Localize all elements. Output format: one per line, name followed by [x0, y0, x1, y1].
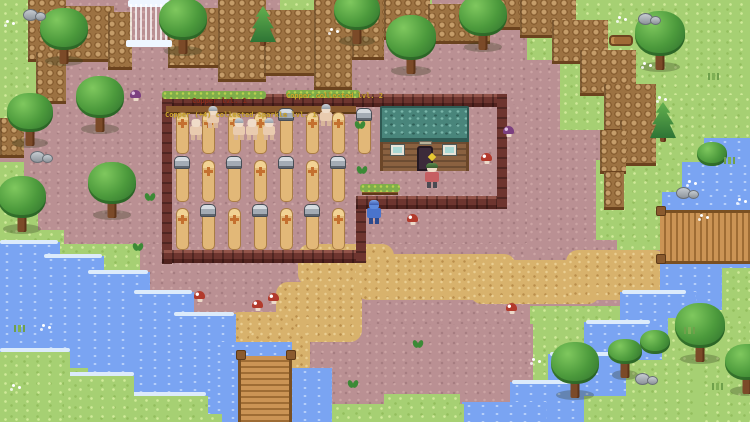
tree	[725, 344, 750, 396]
floating-label: Copper lvl. 1	[192, 97, 247, 105]
foam	[174, 312, 234, 316]
mushroom-red[interactable]	[481, 153, 492, 164]
crop-pole[interactable]	[228, 208, 241, 250]
tree-canopy	[76, 76, 124, 118]
mushroom-cap	[481, 153, 492, 161]
pole-cross-icon	[337, 215, 340, 224]
collector-bin[interactable]	[174, 156, 190, 169]
tree-trunk	[108, 202, 117, 218]
tree-canopy	[608, 339, 642, 364]
fence	[162, 250, 366, 263]
floating-label: Copper (+4) collected Sparkle lvl. 1	[165, 111, 317, 119]
pine-tree	[650, 102, 676, 144]
sprout-leaf	[352, 379, 360, 388]
flower	[618, 16, 621, 19]
foam	[0, 240, 58, 244]
collector-bin[interactable]	[330, 156, 346, 169]
sprout-leaf	[137, 242, 145, 251]
mushroom-red[interactable]	[194, 291, 205, 302]
flower	[688, 180, 691, 183]
tree-trunk	[60, 48, 69, 64]
rock	[635, 372, 657, 385]
grass-tuft	[684, 327, 696, 334]
water	[462, 402, 546, 422]
pole-cross-icon	[233, 215, 236, 224]
tree	[551, 342, 599, 400]
foam	[44, 254, 102, 258]
tree-trunk	[571, 382, 580, 398]
flower	[700, 214, 703, 217]
grass-tuft	[708, 73, 720, 80]
npc-leg	[264, 135, 268, 140]
tree	[76, 76, 124, 134]
npc-leg	[214, 123, 218, 128]
cabin-sign	[419, 141, 432, 145]
npc-leg	[234, 135, 238, 140]
tree-trunk	[179, 38, 188, 54]
npc-worker[interactable]	[263, 119, 275, 140]
npc-leg	[247, 135, 251, 140]
mushroom-cap	[268, 293, 279, 301]
cliff	[604, 172, 624, 210]
npc-leg	[208, 123, 212, 128]
player-leg	[433, 182, 437, 188]
foam	[134, 290, 192, 294]
flower	[12, 384, 15, 387]
sprout	[413, 339, 424, 348]
collector-bin[interactable]	[252, 204, 268, 217]
foam	[622, 290, 686, 294]
bridge-vertical[interactable]	[238, 356, 292, 422]
sprout-leaf	[417, 339, 425, 348]
bush	[697, 142, 727, 166]
flower	[658, 96, 661, 99]
collector-bin[interactable]	[226, 156, 242, 169]
npc-head	[248, 119, 257, 127]
sprout-leaf	[149, 192, 157, 201]
terrain-grass	[196, 414, 222, 422]
bush-canopy	[640, 330, 670, 354]
tree-trunk	[620, 362, 629, 378]
bridge-post	[656, 206, 666, 216]
npc-leg	[240, 135, 244, 140]
bridge-post	[286, 350, 296, 360]
pole-cross-icon	[181, 215, 184, 224]
pole-cross-icon	[207, 167, 210, 176]
rock-small	[650, 16, 661, 25]
tree-trunk	[406, 58, 415, 74]
helmet-icon	[322, 104, 331, 109]
mushroom-red[interactable]	[506, 303, 517, 314]
npc-leg	[253, 135, 257, 140]
hat-icon	[426, 163, 438, 168]
player-green[interactable]	[425, 162, 439, 188]
flower	[330, 28, 333, 31]
flower	[532, 358, 535, 361]
npc-leg	[321, 121, 325, 126]
terrain-grass	[722, 268, 750, 316]
npc-leg	[270, 135, 274, 140]
crop-pole[interactable]	[306, 160, 319, 202]
vine-trellis-leaves	[360, 184, 400, 192]
tree-canopy	[551, 342, 599, 384]
npc-body	[246, 126, 258, 135]
mushroom-red[interactable]	[252, 300, 263, 311]
npc-leg	[197, 135, 201, 140]
tree	[7, 93, 53, 148]
rock-small	[35, 12, 46, 21]
player-leg	[369, 218, 373, 224]
log	[609, 35, 633, 46]
tree	[386, 15, 436, 76]
mushroom-cap	[503, 126, 514, 134]
tree	[0, 176, 46, 234]
rock	[23, 8, 45, 21]
tree	[159, 0, 207, 56]
player-leg	[427, 182, 431, 188]
player-blue[interactable]	[367, 201, 381, 224]
helmet-icon	[369, 200, 379, 205]
tree-trunk	[18, 216, 27, 232]
tree-trunk	[742, 378, 750, 394]
cliff	[600, 130, 626, 174]
sprout	[145, 192, 156, 201]
rock-small	[42, 154, 53, 163]
crop-pole[interactable]	[332, 112, 345, 154]
crop-pole[interactable]	[280, 208, 293, 250]
player-body	[367, 208, 381, 218]
tree	[88, 162, 136, 220]
mushroom-cap	[506, 303, 517, 311]
npc-worker[interactable]	[246, 119, 258, 140]
crop-pole[interactable]	[332, 208, 345, 250]
tree-trunk	[695, 346, 704, 362]
pole-cross-icon	[181, 119, 184, 128]
tree-canopy	[7, 93, 53, 132]
tree	[334, 0, 380, 46]
tree-canopy	[159, 0, 207, 40]
bridge-post	[236, 350, 246, 360]
npc-body	[263, 126, 275, 135]
terrain-grass	[384, 394, 460, 422]
pole-cross-icon	[259, 119, 262, 128]
pine-canopy	[650, 102, 676, 138]
rock	[676, 186, 698, 199]
crop-pole[interactable]	[202, 160, 215, 202]
game-viewport[interactable]: Copper lvl. 1 Copper (+4) collected Spar…	[0, 0, 750, 422]
flower	[42, 324, 45, 327]
bush-canopy	[697, 142, 727, 166]
pine-canopy	[250, 6, 276, 42]
tree-trunk	[352, 28, 361, 44]
flower	[6, 20, 9, 23]
sprout	[357, 165, 368, 174]
tree-canopy	[725, 344, 750, 380]
fence	[497, 94, 507, 209]
mushroom-cap	[252, 300, 263, 308]
mushroom-red[interactable]	[268, 293, 279, 304]
mushroom-cap	[130, 90, 141, 98]
sprout	[355, 120, 366, 129]
grass-tuft	[724, 157, 736, 164]
tree-canopy	[675, 303, 725, 348]
npc-body	[190, 126, 202, 135]
tree-trunk	[25, 130, 34, 146]
tree-trunk	[96, 116, 105, 132]
collector-bin[interactable]	[200, 204, 216, 217]
pole-cross-icon	[337, 119, 340, 128]
rock-small	[688, 190, 699, 199]
npc-body	[233, 126, 245, 135]
pole-cross-icon	[285, 215, 288, 224]
player-leg	[375, 218, 379, 224]
tree-canopy	[334, 0, 380, 30]
mushroom-cap	[407, 214, 418, 222]
rock	[30, 150, 52, 163]
collector-bin[interactable]	[278, 156, 294, 169]
npc-leg	[191, 135, 195, 140]
rock-small	[647, 376, 658, 385]
npc-leg	[327, 121, 331, 126]
npc-worker[interactable]	[233, 119, 245, 140]
flower	[643, 62, 646, 65]
foam	[88, 270, 148, 274]
player-body	[425, 172, 439, 182]
sprout	[133, 242, 144, 251]
rock	[638, 12, 660, 25]
grass-tuft	[712, 383, 724, 390]
tree	[40, 8, 88, 66]
flower	[738, 198, 741, 201]
foam	[586, 320, 650, 324]
tree-trunk	[479, 34, 488, 50]
tree-trunk	[655, 54, 664, 70]
tree-canopy	[40, 8, 88, 50]
tree-canopy	[459, 0, 507, 36]
floating-label: Copper collected lvl. 2	[286, 92, 383, 100]
fence	[162, 94, 172, 264]
mushroom-purple[interactable]	[130, 90, 141, 101]
npc-body	[320, 112, 332, 121]
tree	[675, 303, 725, 364]
cabin-window	[443, 145, 456, 155]
npc-worker[interactable]	[320, 105, 332, 126]
tree-canopy	[0, 176, 46, 218]
mushroom-purple[interactable]	[503, 126, 514, 137]
crop-pole[interactable]	[254, 160, 267, 202]
grass-tuft	[14, 325, 26, 332]
npc-head	[192, 119, 201, 127]
mushroom-cap	[194, 291, 205, 299]
cabin-roof	[380, 106, 469, 142]
sprout-leaf	[359, 120, 367, 129]
pole-cross-icon	[311, 119, 314, 128]
sprout-leaf	[361, 165, 369, 174]
mushroom-red[interactable]	[407, 214, 418, 225]
bridge-post	[656, 254, 666, 264]
pole-cross-icon	[259, 167, 262, 176]
tree-canopy	[88, 162, 136, 204]
bush	[640, 330, 670, 354]
terrain-grass	[64, 376, 134, 422]
crop-pole[interactable]	[176, 208, 189, 250]
cabin-window	[391, 145, 404, 155]
pine-tree	[250, 6, 276, 48]
npc-worker[interactable]	[190, 119, 202, 140]
collector-bin[interactable]	[304, 204, 320, 217]
terrain-grass	[0, 352, 70, 422]
sprout	[348, 379, 359, 388]
pole-cross-icon	[311, 167, 314, 176]
tree-canopy	[386, 15, 436, 60]
tree	[459, 0, 507, 52]
bridge-horizontal[interactable]	[660, 210, 750, 264]
